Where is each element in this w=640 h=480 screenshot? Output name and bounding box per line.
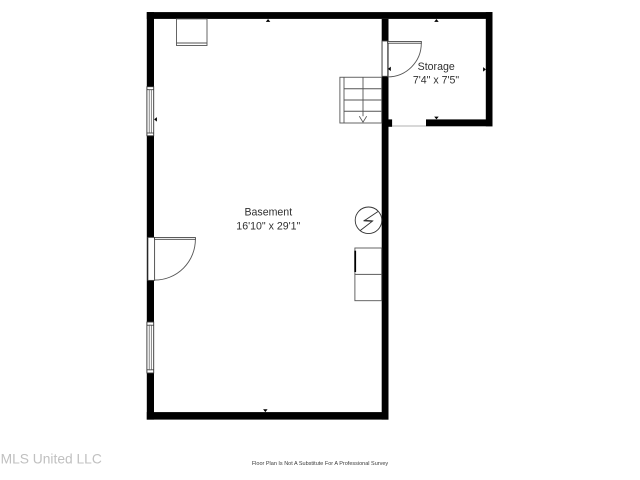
svg-text:Storage: Storage (418, 61, 455, 73)
svg-text:Basement: Basement (244, 207, 292, 219)
svg-text:7'4" x 7'5": 7'4" x 7'5" (413, 75, 460, 87)
svg-text:MLS United LLC: MLS United LLC (1, 451, 102, 466)
svg-text:16'10" x 29'1": 16'10" x 29'1" (236, 220, 300, 232)
svg-text:Floor Plan Is Not A Substitute: Floor Plan Is Not A Substitute For A Pro… (252, 461, 389, 467)
